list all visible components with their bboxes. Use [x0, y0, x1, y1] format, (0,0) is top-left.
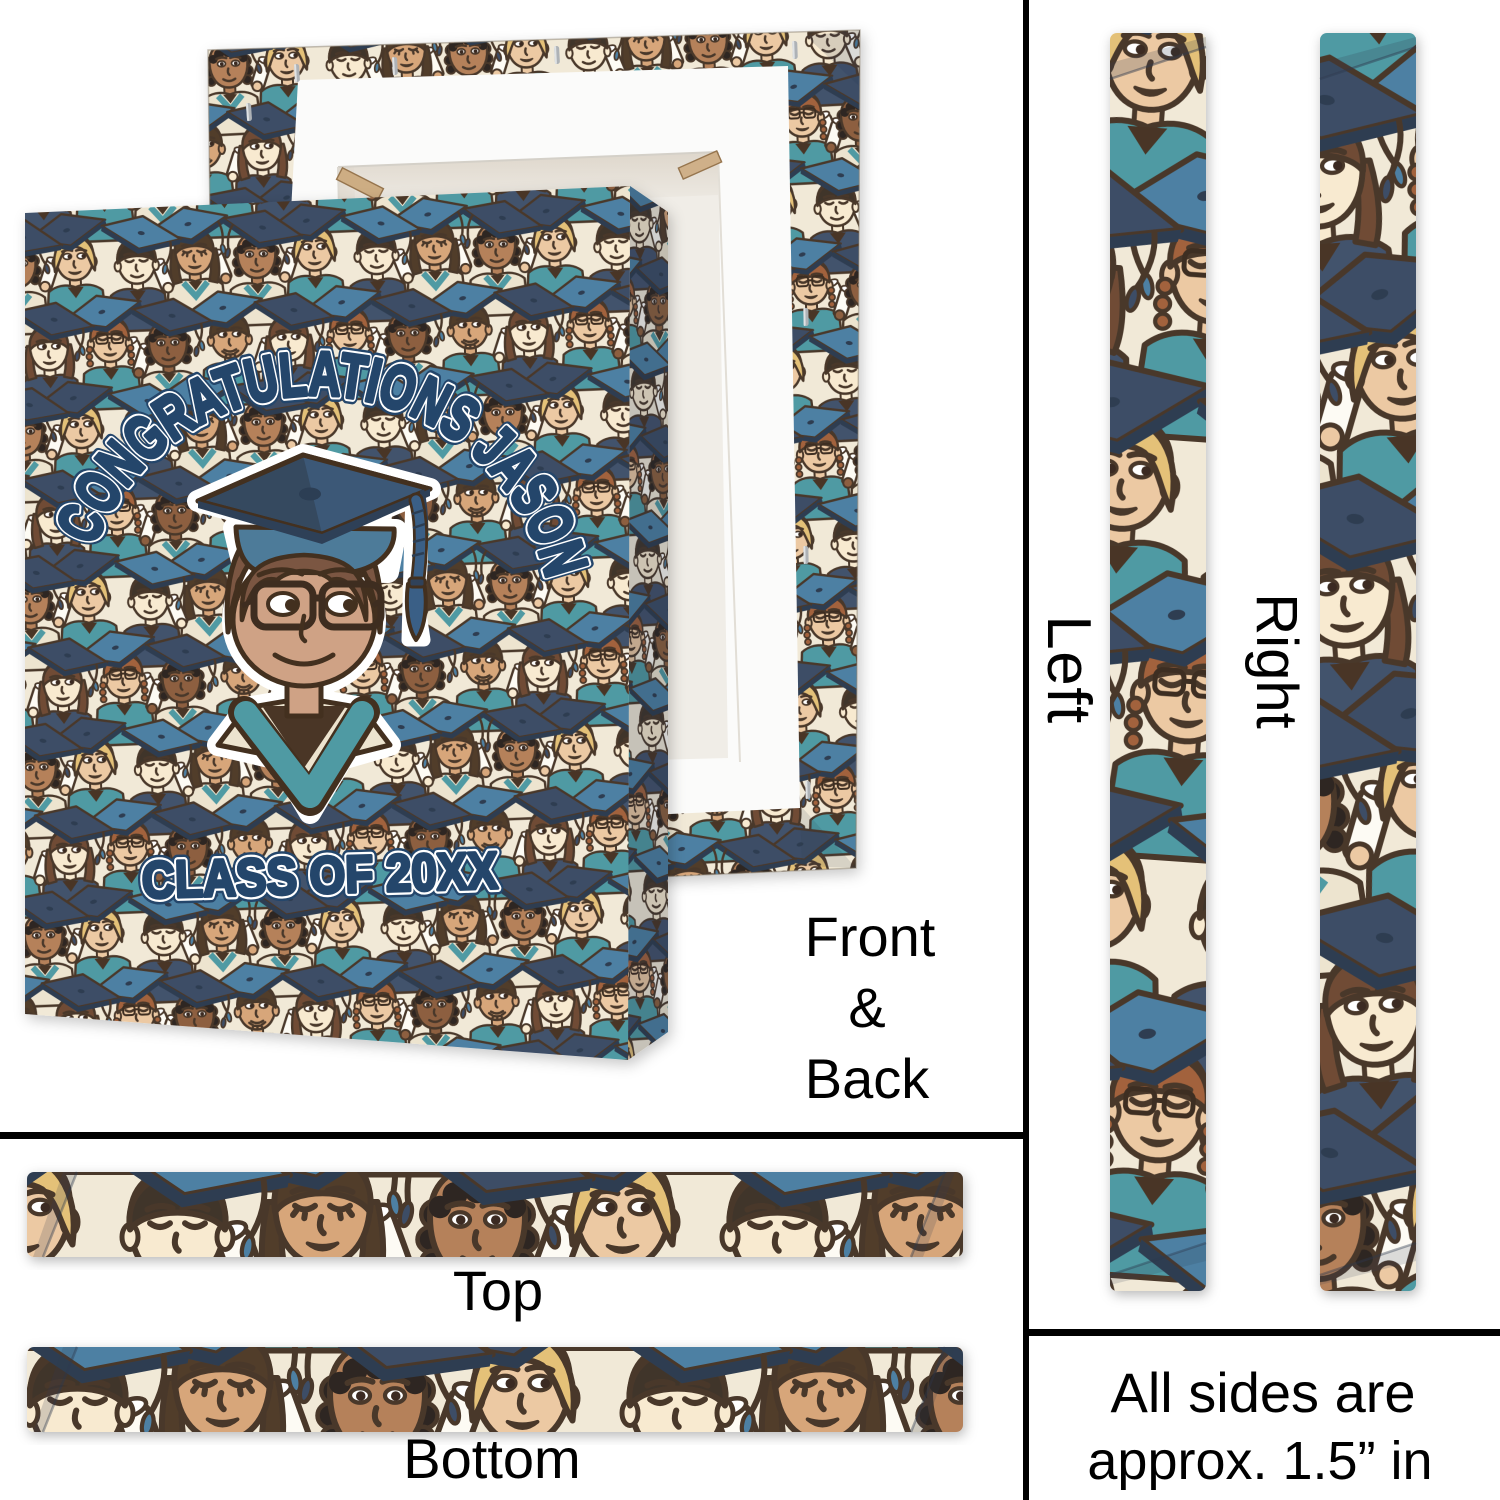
svg-text:Bottom: Bottom	[403, 1427, 580, 1490]
svg-text:Top: Top	[453, 1259, 543, 1322]
svg-text:Back: Back	[805, 1047, 930, 1110]
svg-text:All sides are: All sides are	[1110, 1361, 1415, 1424]
svg-text:&: &	[848, 976, 885, 1039]
svg-text:Left: Left	[1034, 615, 1103, 724]
svg-text:approx. 1.5” in: approx. 1.5” in	[1087, 1431, 1432, 1491]
svg-text:Front: Front	[805, 905, 936, 968]
svg-text:CLASS OF 20XX: CLASS OF 20XX	[141, 842, 499, 910]
svg-text:Right: Right	[1244, 593, 1309, 728]
